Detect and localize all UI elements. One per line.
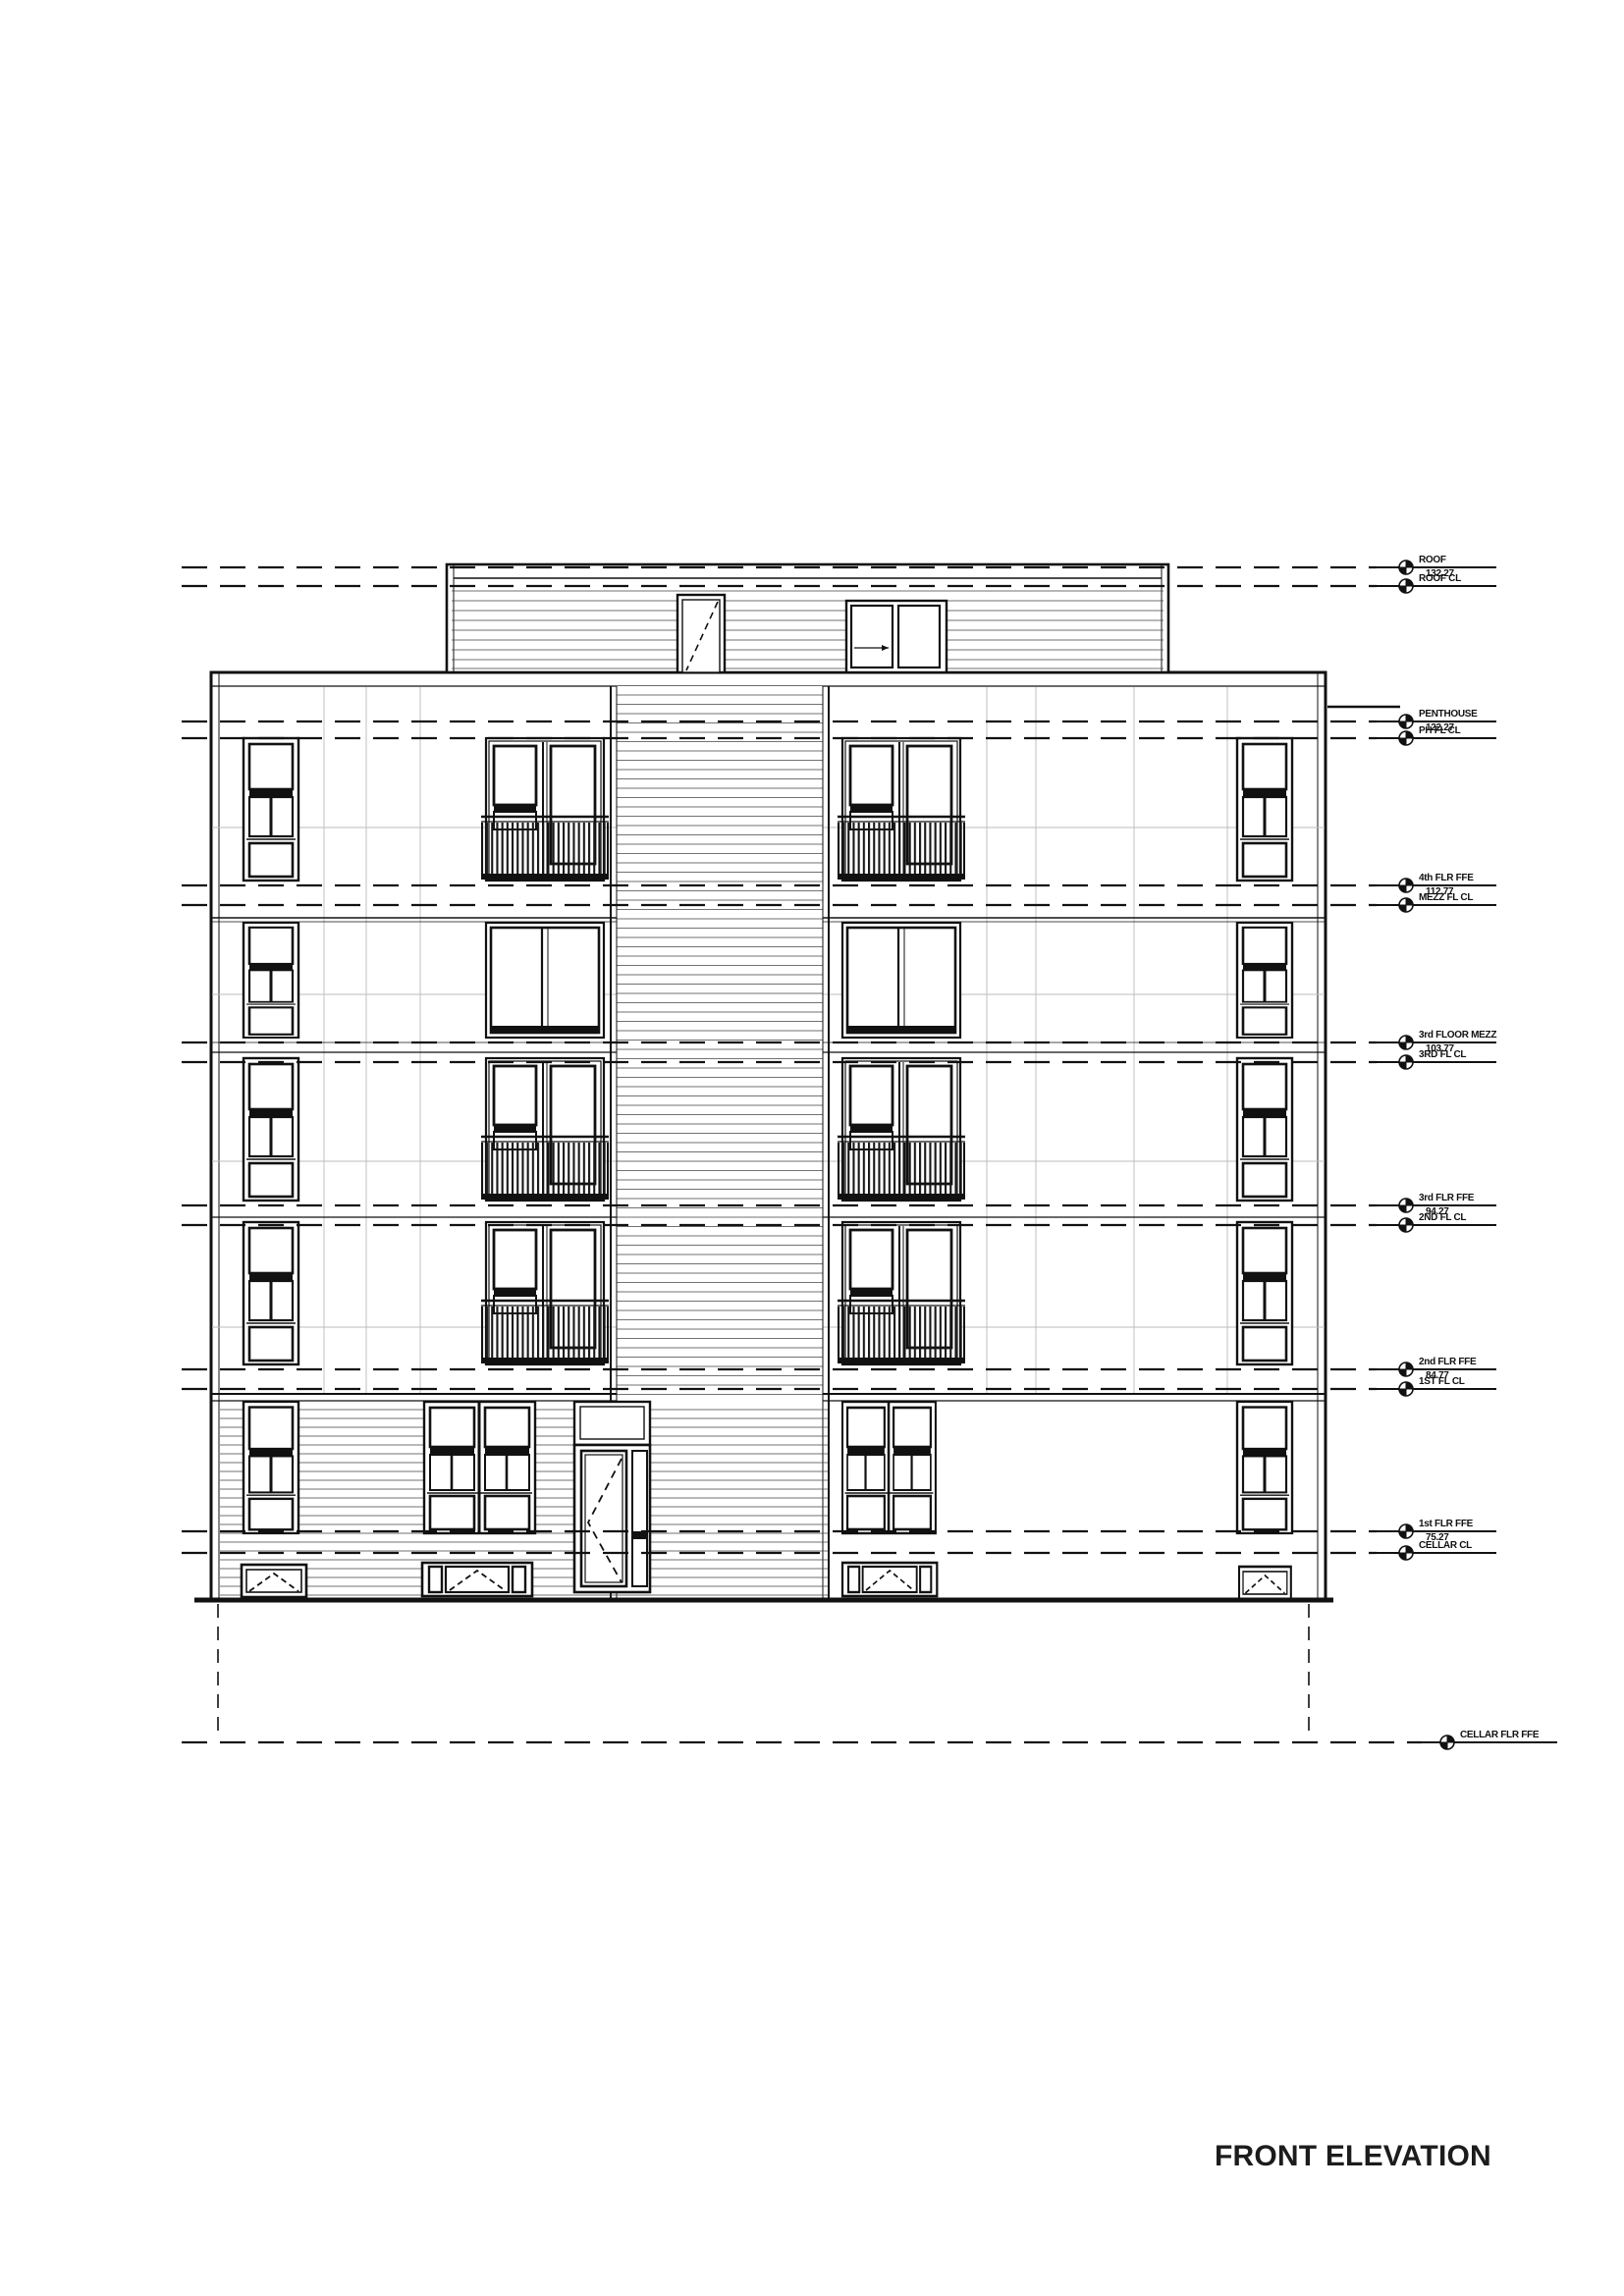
main-facade [211, 672, 1326, 1600]
vent [422, 1563, 532, 1596]
level-label-penthouse: PENTHOUSE [1419, 710, 1478, 720]
datum-marker-icon [1399, 1218, 1413, 1232]
window [1237, 923, 1292, 1038]
entry-door [574, 1402, 650, 1592]
datum-marker-icon [1399, 715, 1413, 728]
level-label-mezz-fl-cl: MEZZ FL CL [1419, 893, 1473, 903]
window [486, 923, 604, 1038]
penthouse-bulkhead [447, 564, 1168, 672]
datum-marker-icon [1399, 1055, 1413, 1069]
window [842, 1402, 936, 1533]
window [842, 923, 960, 1038]
bulkhead-window [846, 601, 947, 672]
window [244, 1222, 298, 1364]
datum-marker-icon [1399, 1382, 1413, 1396]
datum-marker-icon [1399, 1362, 1413, 1376]
level-label-cellar-cl: CELLAR CL [1419, 1541, 1472, 1551]
balcony-window [481, 1222, 609, 1364]
datum-marker-icon [1399, 879, 1413, 892]
window [1237, 1222, 1292, 1364]
window [424, 1402, 535, 1533]
datum-marker-icon [1399, 1199, 1413, 1212]
window [1237, 738, 1292, 881]
datum-marker-icon [1399, 1524, 1413, 1538]
roof-access-door [677, 595, 725, 672]
balcony-window [838, 1222, 965, 1364]
balcony-window [481, 738, 609, 881]
level-label-1st-fl-cl: 1ST FL CL [1419, 1377, 1465, 1387]
balcony-window [838, 738, 965, 881]
drawing-title: FRONT ELEVATION [1215, 2140, 1491, 2173]
window [1237, 1058, 1292, 1201]
level-label-3rd-floor-mezz: 3rd FLOOR MEZZ [1419, 1031, 1496, 1041]
level-label-4th-flr-ffe: 4th FLR FFE [1419, 874, 1474, 883]
window [244, 738, 298, 881]
datum-marker-icon [1399, 579, 1413, 593]
datum-marker-icon [1399, 1036, 1413, 1049]
level-label-roof: ROOF [1419, 556, 1446, 565]
balcony-window [838, 1058, 965, 1201]
datum-marker-icon [1399, 731, 1413, 745]
window [1237, 1402, 1292, 1533]
level-label-3rd-flr-ffe: 3rd FLR FFE [1419, 1194, 1474, 1203]
window [244, 1058, 298, 1201]
level-label-roof-cl: ROOF CL [1419, 574, 1461, 584]
vent [1239, 1567, 1291, 1599]
level-label-ph-fl-cl: PH FL CL [1419, 726, 1460, 736]
datum-marker-icon [1399, 1546, 1413, 1560]
datum-marker-icon [1399, 561, 1413, 574]
level-label-3rd-fl-cl: 3RD FL CL [1419, 1050, 1466, 1060]
vent [842, 1563, 937, 1596]
level-label-2nd-fl-cl: 2ND FL CL [1419, 1213, 1466, 1223]
level-label-1st-flr-ffe: 1st FLR FFE [1419, 1520, 1473, 1529]
datum-marker-icon [1440, 1735, 1454, 1749]
balcony-window [481, 1058, 609, 1201]
window [244, 923, 298, 1038]
datum-marker-icon [1399, 898, 1413, 912]
window [244, 1402, 298, 1533]
level-label-2nd-flr-ffe: 2nd FLR FFE [1419, 1358, 1476, 1367]
drawing-sheet: ROOF 132.27 ROOF CL PENTHOUSE 122.27 PH … [0, 0, 1624, 2296]
level-label-cellar-flr-ffe: CELLAR FLR FFE [1460, 1731, 1539, 1740]
vent [242, 1565, 306, 1597]
elevation-linework [0, 0, 1624, 2296]
